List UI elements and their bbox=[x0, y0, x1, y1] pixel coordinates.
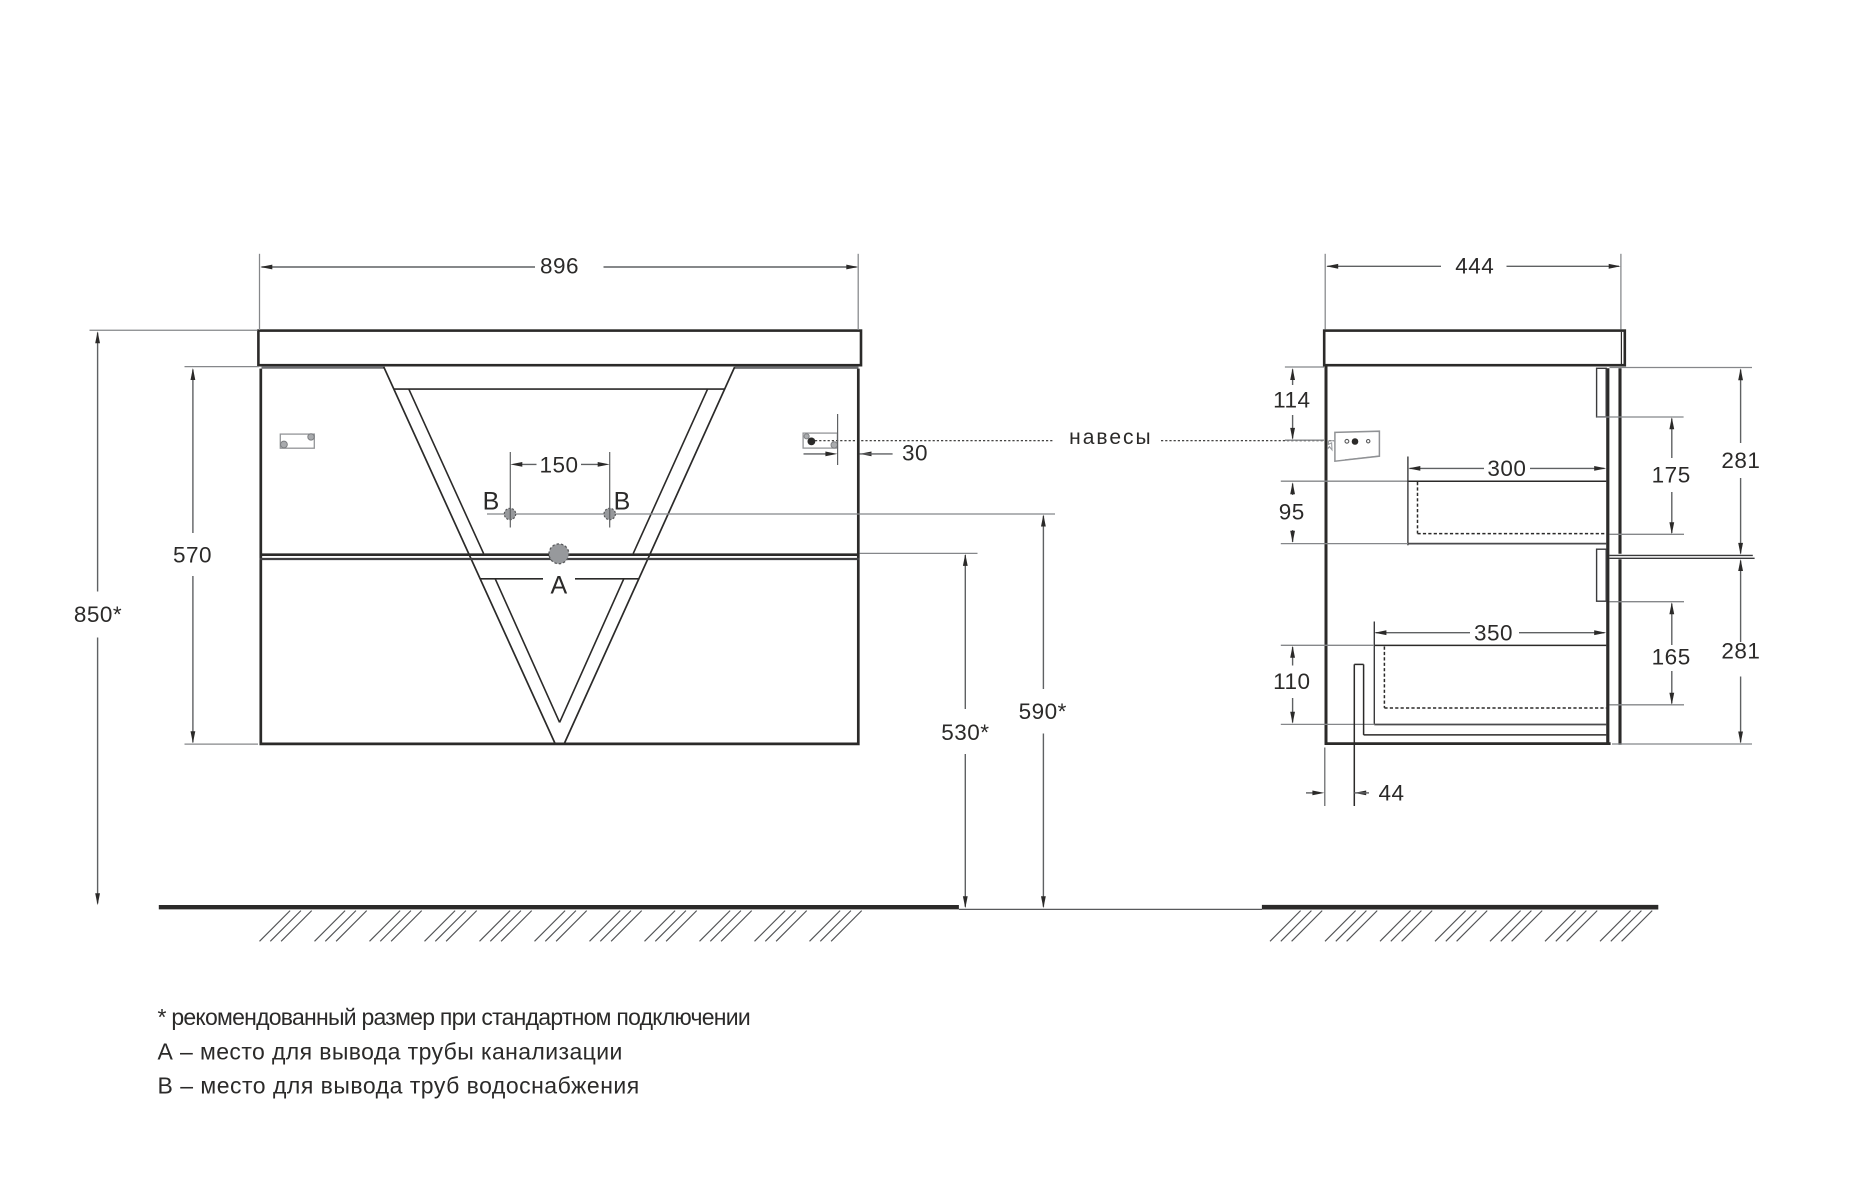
svg-text:44: 44 bbox=[1378, 781, 1404, 806]
svg-text:850*: 850* bbox=[74, 602, 122, 627]
svg-text:281: 281 bbox=[1721, 448, 1760, 473]
svg-text:A: A bbox=[551, 571, 568, 599]
svg-text:95: 95 bbox=[1279, 500, 1305, 525]
svg-text:570: 570 bbox=[173, 543, 212, 568]
svg-text:114: 114 bbox=[1273, 388, 1310, 413]
svg-text:навесы: навесы bbox=[1069, 426, 1152, 449]
svg-text:В – место для вывода труб водо: В – место для вывода труб водоснабжения bbox=[158, 1073, 640, 1099]
svg-text:B: B bbox=[614, 488, 631, 516]
svg-text:590*: 590* bbox=[1019, 699, 1067, 724]
svg-text:350: 350 bbox=[1474, 620, 1513, 645]
svg-text:444: 444 bbox=[1455, 253, 1494, 278]
svg-text:110: 110 bbox=[1273, 669, 1310, 694]
svg-text:30: 30 bbox=[902, 441, 928, 466]
svg-text:896: 896 bbox=[540, 253, 579, 278]
svg-text:А – место для вывода трубы кан: А – место для вывода трубы канализации bbox=[158, 1039, 623, 1065]
svg-text:165: 165 bbox=[1652, 645, 1691, 670]
svg-text:B: B bbox=[483, 488, 500, 516]
svg-text:530*: 530* bbox=[941, 720, 989, 745]
svg-text:281: 281 bbox=[1721, 639, 1760, 664]
svg-text:150: 150 bbox=[539, 452, 578, 477]
svg-text:300: 300 bbox=[1487, 456, 1526, 481]
svg-text:* рекомендованный размер при с: * рекомендованный размер при стандартном… bbox=[158, 1004, 750, 1030]
svg-text:175: 175 bbox=[1652, 463, 1691, 488]
